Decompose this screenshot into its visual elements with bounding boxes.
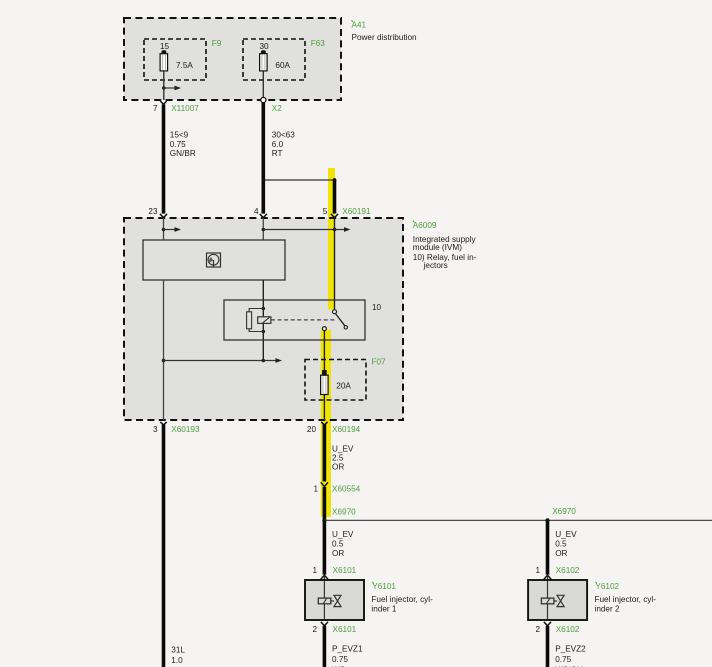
svg-text:0.75: 0.75: [170, 140, 186, 149]
svg-text:inder 2: inder 2: [595, 605, 620, 614]
svg-text:Fuel injector, cyl-: Fuel injector, cyl-: [595, 595, 657, 604]
svg-text:F9: F9: [212, 39, 222, 48]
svg-text:X6101: X6101: [333, 566, 357, 575]
svg-text:X6101: X6101: [333, 625, 357, 634]
svg-text:0.75: 0.75: [555, 655, 571, 664]
svg-text:P_EVZ2: P_EVZ2: [555, 645, 586, 654]
svg-text:X60191: X60191: [342, 207, 371, 216]
svg-text:U_EV: U_EV: [332, 445, 354, 454]
svg-text:60A: 60A: [275, 61, 290, 70]
svg-text:3: 3: [153, 425, 158, 434]
svg-text:Y6102: Y6102: [595, 582, 619, 591]
svg-text:X6102: X6102: [556, 566, 580, 575]
svg-text:1: 1: [313, 485, 318, 494]
svg-text:Power distribution: Power distribution: [352, 33, 418, 42]
svg-text:module (IVM): module (IVM): [413, 243, 462, 252]
svg-text:X60194: X60194: [332, 425, 361, 434]
svg-text:U_EV: U_EV: [555, 530, 577, 539]
svg-text:20: 20: [307, 425, 317, 434]
svg-text:15: 15: [160, 42, 170, 51]
svg-text:31L: 31L: [171, 646, 185, 655]
svg-text:X6970: X6970: [332, 508, 356, 517]
svg-text:OR: OR: [555, 549, 567, 558]
svg-text:1.0: 1.0: [171, 656, 183, 665]
svg-text:1: 1: [535, 566, 540, 575]
svg-text:6.0: 6.0: [272, 140, 284, 149]
svg-text:F63: F63: [311, 39, 326, 48]
svg-text:2.5: 2.5: [332, 454, 344, 463]
svg-text:OR: OR: [332, 549, 344, 558]
svg-text:15<9: 15<9: [170, 131, 189, 140]
svg-text:X6970: X6970: [552, 507, 576, 516]
svg-text:20A: 20A: [336, 382, 351, 391]
svg-text:0.5: 0.5: [555, 540, 567, 549]
svg-text:5: 5: [323, 207, 328, 216]
svg-text:X60554: X60554: [332, 485, 361, 494]
svg-text:Y6101: Y6101: [372, 582, 396, 591]
svg-text:X2: X2: [272, 104, 282, 113]
svg-text:7: 7: [153, 104, 158, 113]
svg-text:0.5: 0.5: [332, 540, 344, 549]
svg-text:RT: RT: [272, 149, 283, 158]
svg-text:X6102: X6102: [556, 625, 580, 634]
svg-text:X60193: X60193: [171, 425, 200, 434]
svg-text:X11007: X11007: [171, 104, 199, 113]
svg-text:Fuel injector, cyl-: Fuel injector, cyl-: [371, 595, 433, 604]
svg-text:A6009: A6009: [413, 221, 437, 230]
svg-text:OR: OR: [332, 463, 344, 472]
svg-text:F07: F07: [372, 358, 387, 367]
svg-text:30<63: 30<63: [272, 131, 295, 140]
svg-text:1: 1: [312, 566, 317, 575]
svg-text:7.5A: 7.5A: [176, 61, 193, 70]
svg-text:P_EVZ1: P_EVZ1: [332, 645, 363, 654]
svg-text:jectors: jectors: [423, 261, 448, 270]
svg-text:2: 2: [535, 625, 540, 634]
svg-text:A41: A41: [352, 21, 367, 30]
svg-text:U_EV: U_EV: [332, 530, 354, 539]
svg-text:30: 30: [259, 42, 269, 51]
svg-text:23: 23: [148, 207, 158, 216]
svg-text:4: 4: [254, 207, 259, 216]
svg-text:2: 2: [312, 625, 317, 634]
svg-text:0.75: 0.75: [332, 655, 348, 664]
svg-text:10: 10: [372, 303, 382, 312]
svg-text:GN/BR: GN/BR: [170, 149, 196, 158]
svg-text:inder 1: inder 1: [371, 605, 396, 614]
